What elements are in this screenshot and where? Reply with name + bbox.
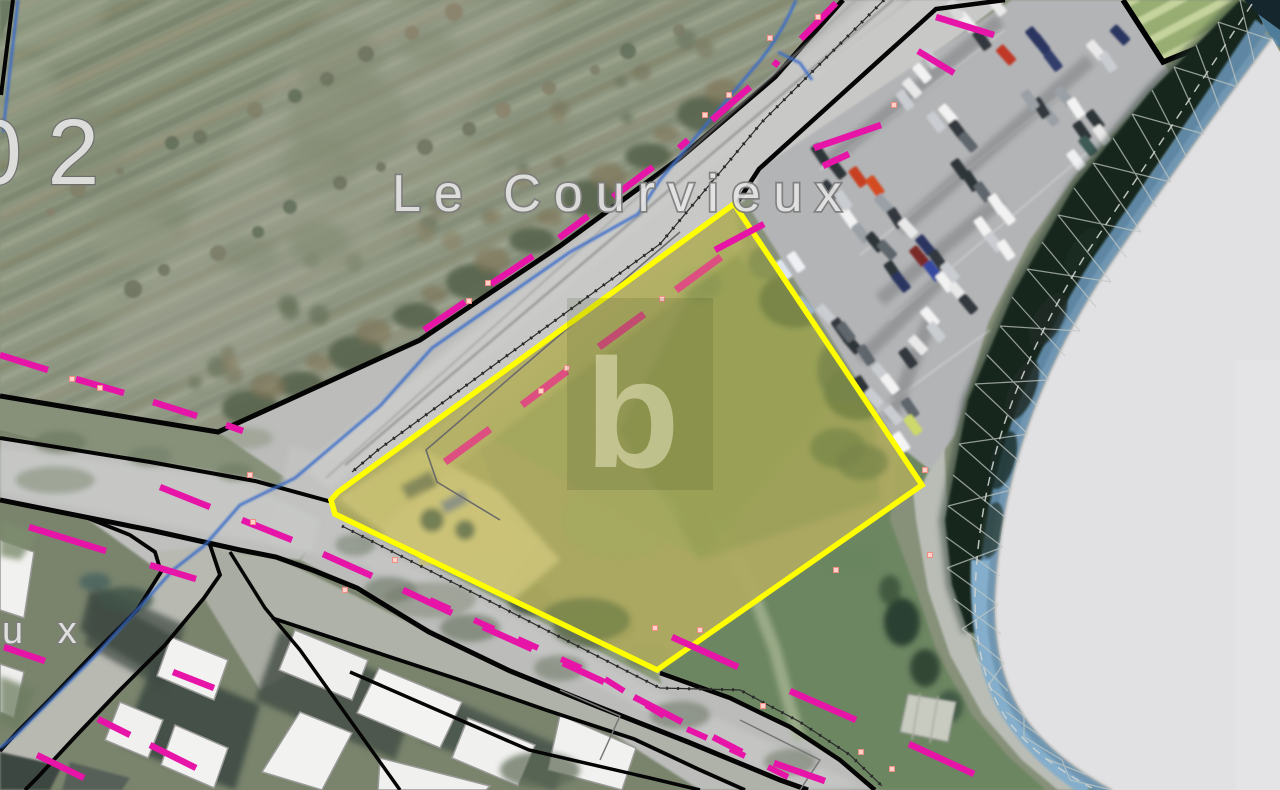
svg-text:u x: u x (2, 610, 89, 652)
svg-text:0 2: 0 2 (0, 100, 99, 204)
svg-text:b: b (585, 327, 680, 500)
svg-text:Le Courvieux: Le Courvieux (392, 165, 854, 223)
